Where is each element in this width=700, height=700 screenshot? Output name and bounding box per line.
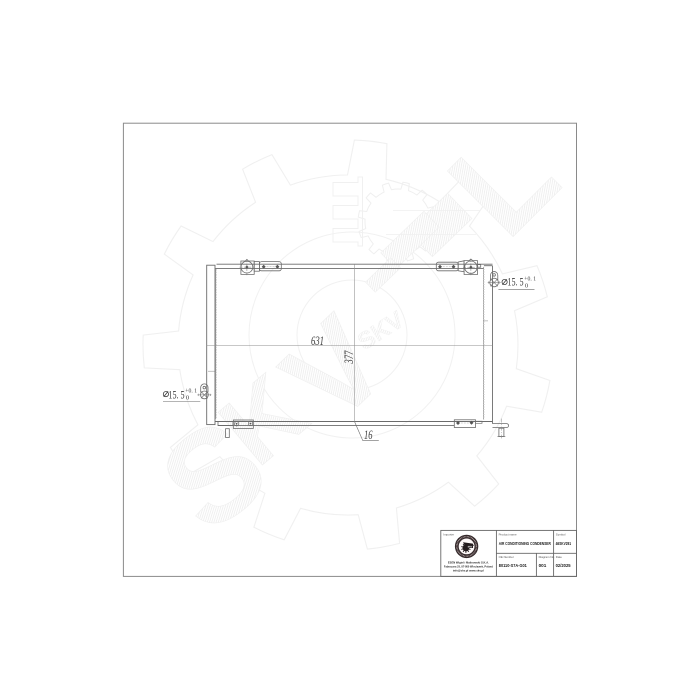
svg-text:Diagram No.: Diagram No.	[539, 555, 555, 559]
svg-text:Date: Date	[556, 555, 562, 559]
svg-text:46SKV291: 46SKV291	[556, 541, 572, 546]
svg-text:SKV: SKV	[468, 547, 473, 549]
svg-text:631: 631	[311, 333, 324, 348]
svg-text:+0. 1: +0. 1	[185, 387, 197, 394]
svg-text:Importer: Importer	[443, 533, 454, 537]
svg-text:001: 001	[539, 563, 547, 568]
svg-text:15. 5: 15. 5	[507, 275, 523, 289]
svg-text:80110-S7A-G01: 80110-S7A-G01	[499, 563, 527, 568]
svg-text:02/2025: 02/2025	[556, 563, 571, 568]
svg-text:16: 16	[364, 427, 373, 442]
svg-text:Product name: Product name	[499, 533, 517, 537]
svg-text:info@skv.pl www.skv.pl: info@skv.pl www.skv.pl	[453, 569, 484, 573]
svg-text:15. 5: 15. 5	[168, 387, 184, 401]
svg-text:OE Number: OE Number	[499, 555, 514, 559]
svg-text:Symbol: Symbol	[556, 533, 566, 537]
svg-text:377: 377	[341, 350, 356, 364]
svg-text:AIR CONDITIONING CONDENSER: AIR CONDITIONING CONDENSER	[499, 541, 551, 546]
